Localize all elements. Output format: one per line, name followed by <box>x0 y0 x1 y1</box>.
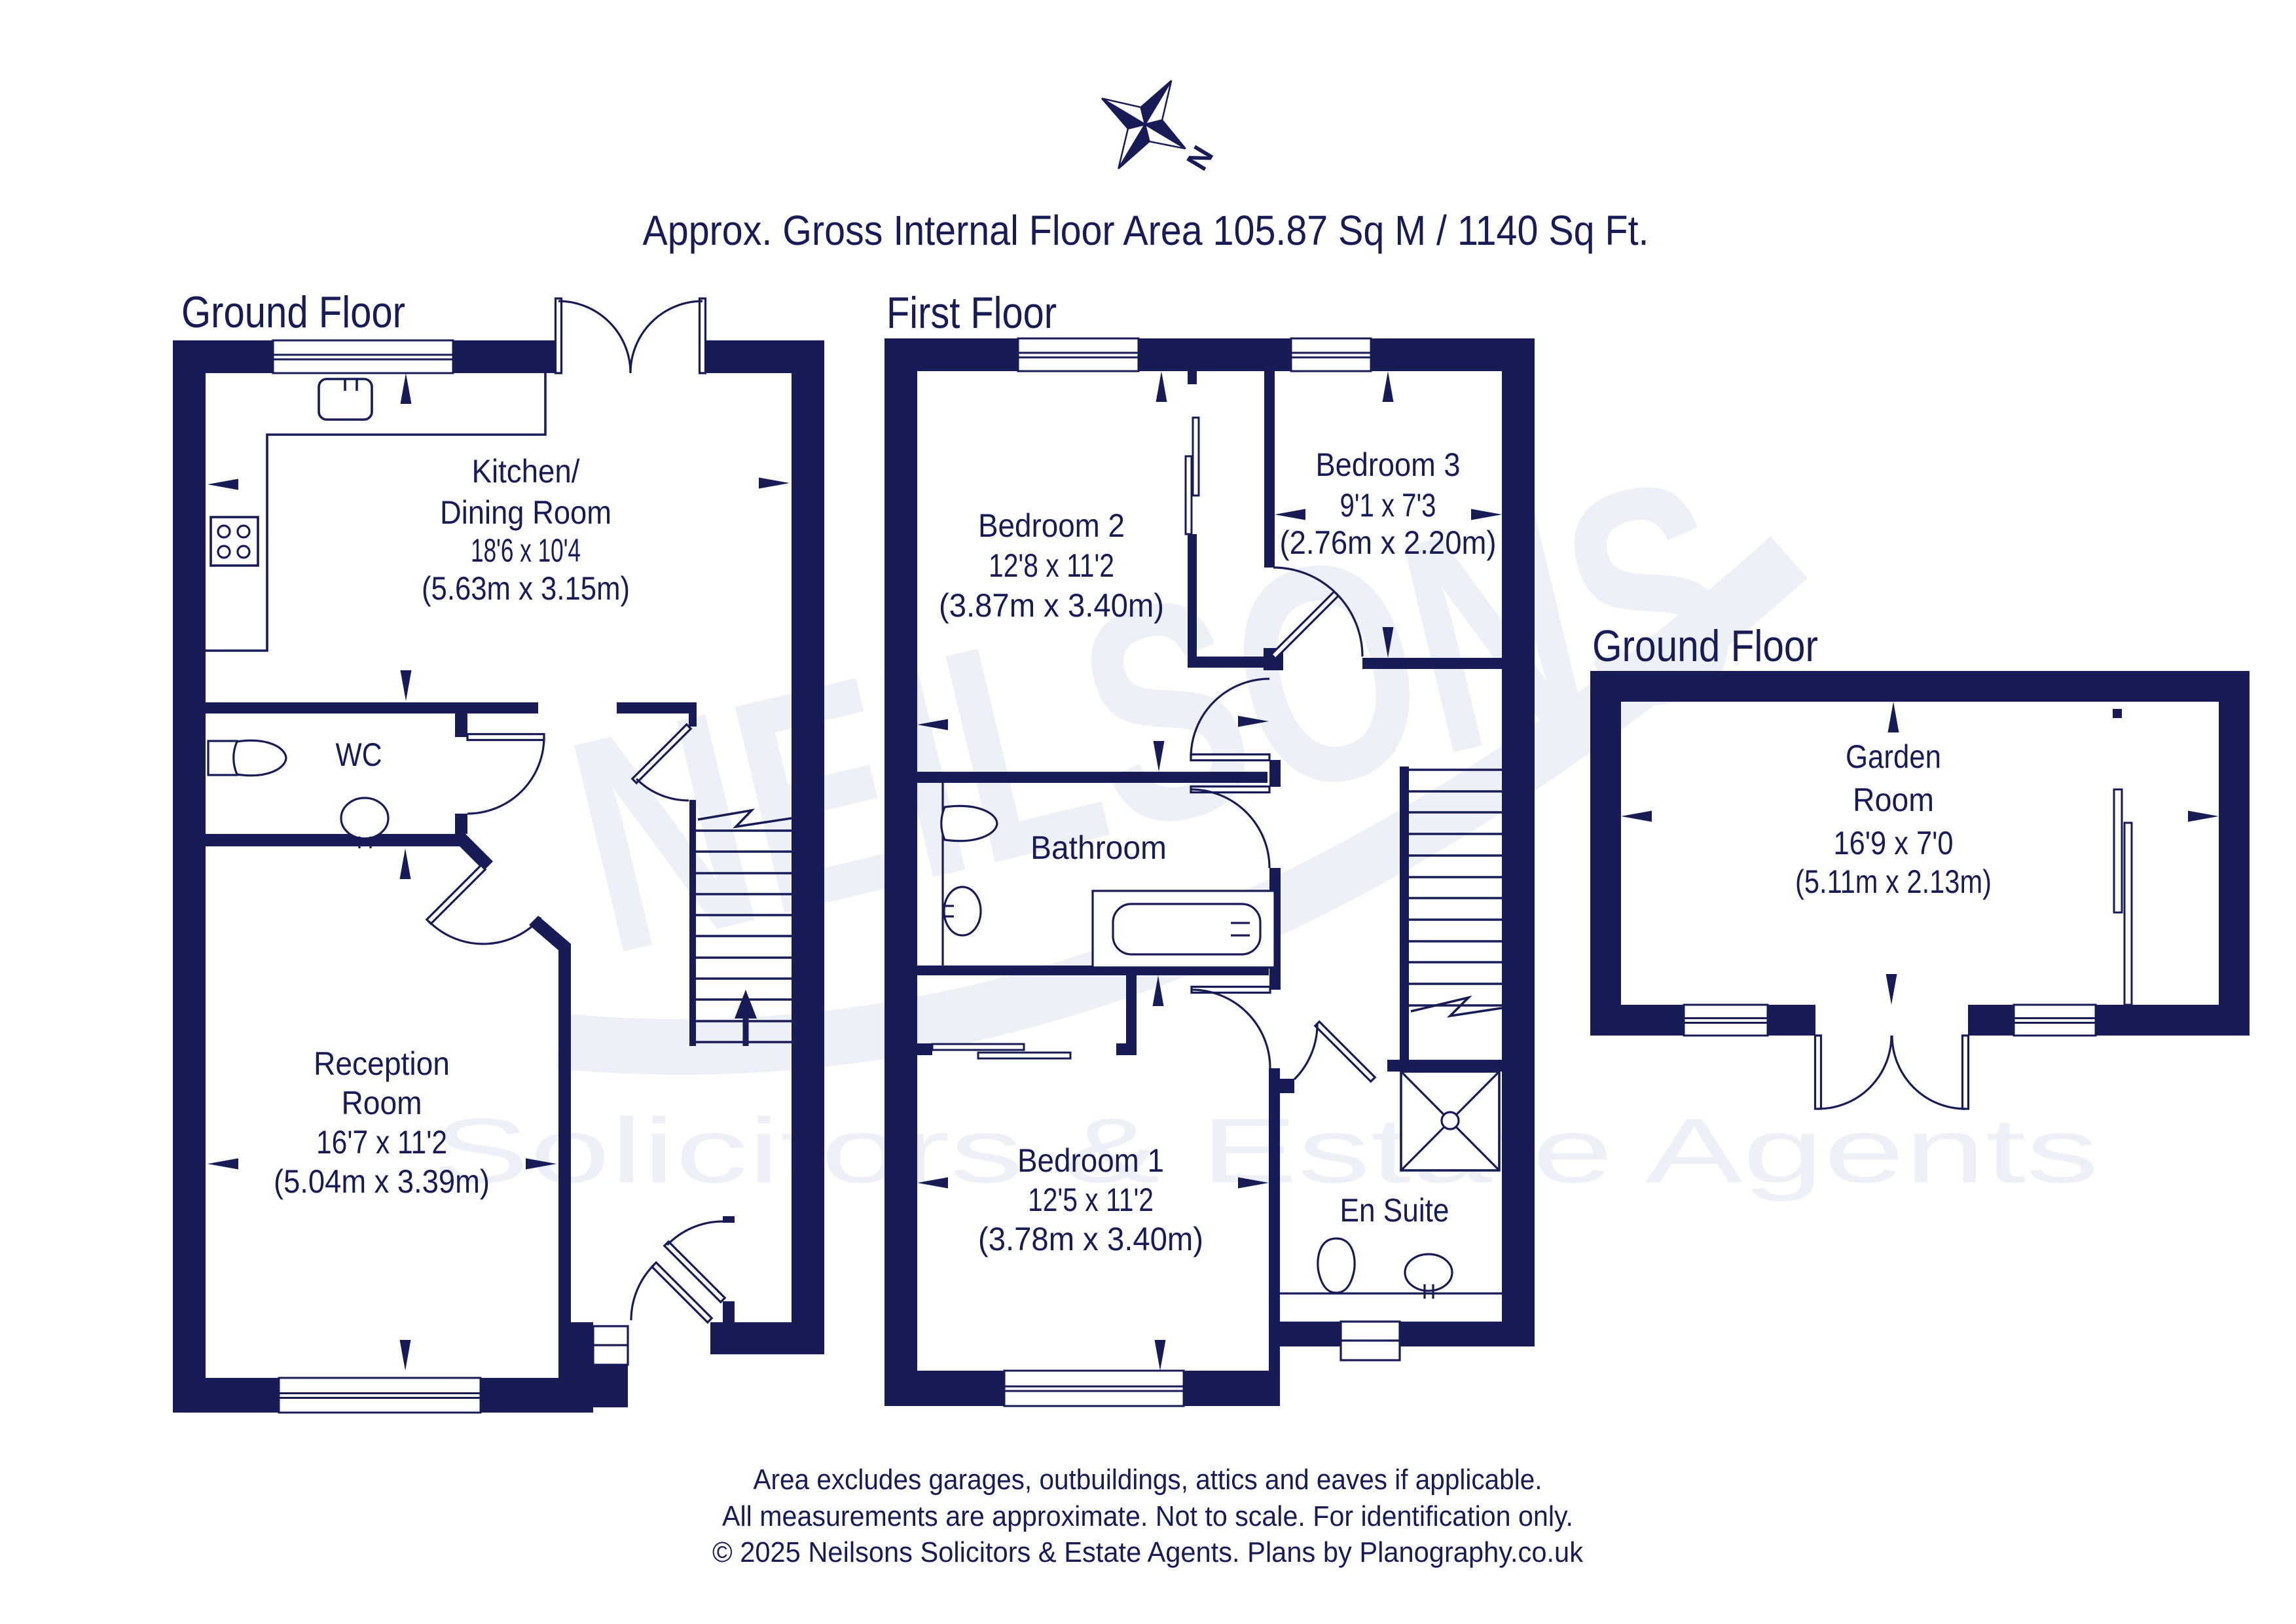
svg-text:First Floor: First Floor <box>886 288 1057 338</box>
svg-text:16'9 x 7'0: 16'9 x 7'0 <box>1834 825 1954 861</box>
svg-text:Solicitors & Estate Agents: Solicitors & Estate Agents <box>433 1099 2099 1202</box>
svg-text:Dining Room: Dining Room <box>440 494 611 531</box>
svg-text:12'5 x 11'2: 12'5 x 11'2 <box>1028 1182 1154 1218</box>
svg-text:(5.63m x 3.15m): (5.63m x 3.15m) <box>422 570 630 607</box>
svg-text:Reception: Reception <box>314 1045 450 1082</box>
svg-text:(5.04m x 3.39m): (5.04m x 3.39m) <box>274 1163 490 1200</box>
svg-text:12'8 x 11'2: 12'8 x 11'2 <box>989 547 1114 584</box>
svg-text:Garden: Garden <box>1846 738 1941 775</box>
svg-text:© 2025 Neilsons Solicitors & E: © 2025 Neilsons Solicitors & Estate Agen… <box>712 1536 1584 1568</box>
svg-text:(3.78m x 3.40m): (3.78m x 3.40m) <box>978 1221 1203 1257</box>
svg-text:Bedroom 2: Bedroom 2 <box>978 507 1125 544</box>
svg-text:WC: WC <box>336 736 382 773</box>
svg-text:All measurements are approxima: All measurements are approximate. Not to… <box>722 1500 1573 1532</box>
svg-text:Ground Floor: Ground Floor <box>1592 621 1818 671</box>
svg-text:Room: Room <box>1853 782 1934 818</box>
svg-text:Bedroom 1: Bedroom 1 <box>1017 1142 1164 1179</box>
svg-text:Bedroom 3: Bedroom 3 <box>1316 446 1461 483</box>
svg-text:Bathroom: Bathroom <box>1030 829 1167 866</box>
svg-text:9'1 x 7'3: 9'1 x 7'3 <box>1340 487 1436 524</box>
svg-text:Room: Room <box>342 1085 422 1121</box>
svg-text:Kitchen/: Kitchen/ <box>472 453 580 490</box>
svg-text:(2.76m x 2.20m): (2.76m x 2.20m) <box>1280 524 1497 561</box>
svg-text:Ground Floor: Ground Floor <box>181 287 405 337</box>
svg-text:(3.87m x 3.40m): (3.87m x 3.40m) <box>939 587 1164 624</box>
svg-text:(5.11m x 2.13m): (5.11m x 2.13m) <box>1795 863 1992 900</box>
svg-text:16'7 x 11'2: 16'7 x 11'2 <box>316 1124 447 1161</box>
svg-text:Approx. Gross Internal Floor A: Approx. Gross Internal Floor Area 105.87… <box>643 207 1649 254</box>
svg-text:Area excludes garages, outbuil: Area excludes garages, outbuildings, att… <box>754 1464 1542 1496</box>
svg-text:18'6 x 10'4: 18'6 x 10'4 <box>471 532 581 569</box>
svg-text:En Suite: En Suite <box>1340 1192 1449 1229</box>
